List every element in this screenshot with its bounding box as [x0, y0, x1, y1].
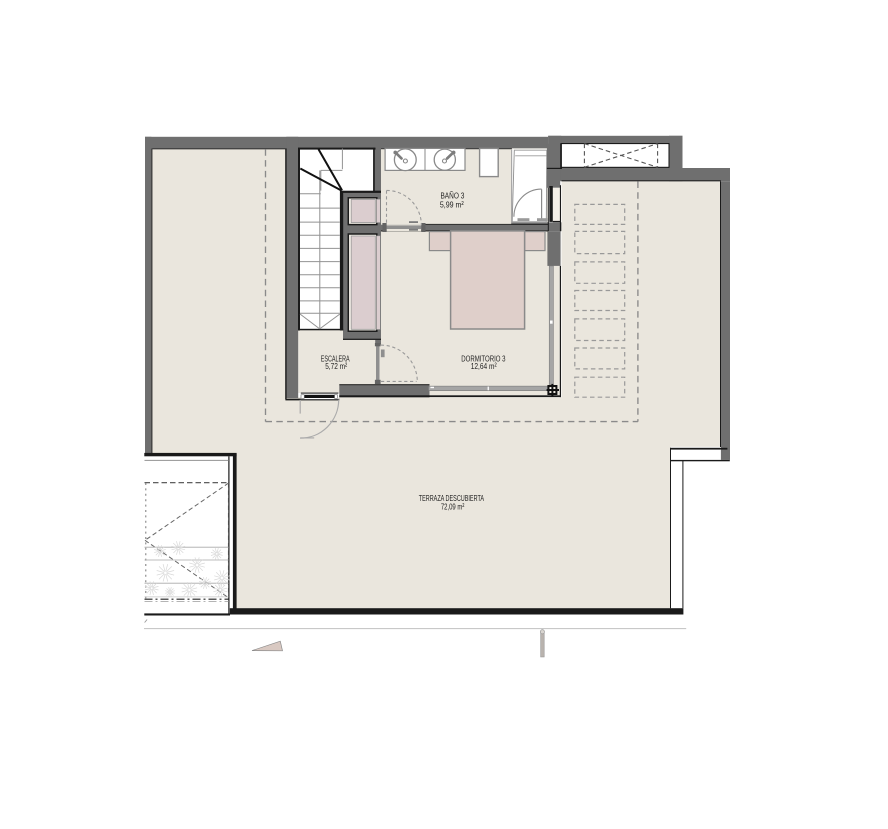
- svg-text:5,72 m²: 5,72 m²: [325, 361, 347, 371]
- svg-text:72,09 m²: 72,09 m²: [441, 501, 465, 511]
- svg-text:12,64 m²: 12,64 m²: [471, 361, 497, 371]
- svg-text:5,99 m²: 5,99 m²: [440, 199, 464, 209]
